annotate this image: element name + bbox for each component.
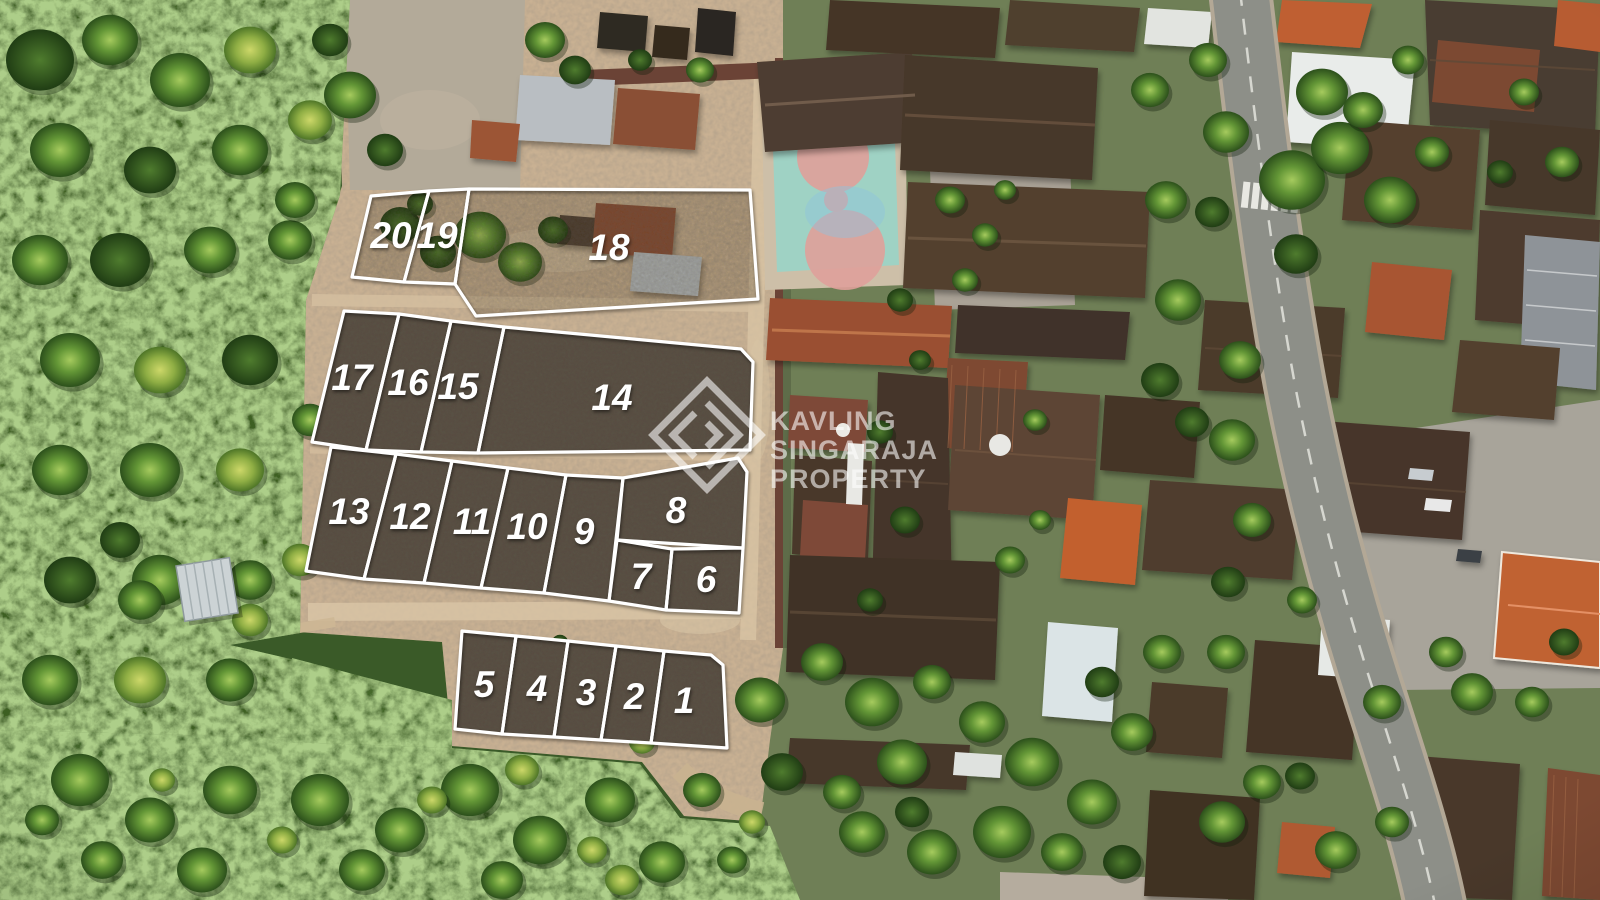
scene-svg: 2019181716151413121110987654321 KAVLING … bbox=[0, 0, 1600, 900]
vignette bbox=[0, 0, 1600, 900]
aerial-photo: 2019181716151413121110987654321 KAVLING … bbox=[0, 0, 1600, 900]
